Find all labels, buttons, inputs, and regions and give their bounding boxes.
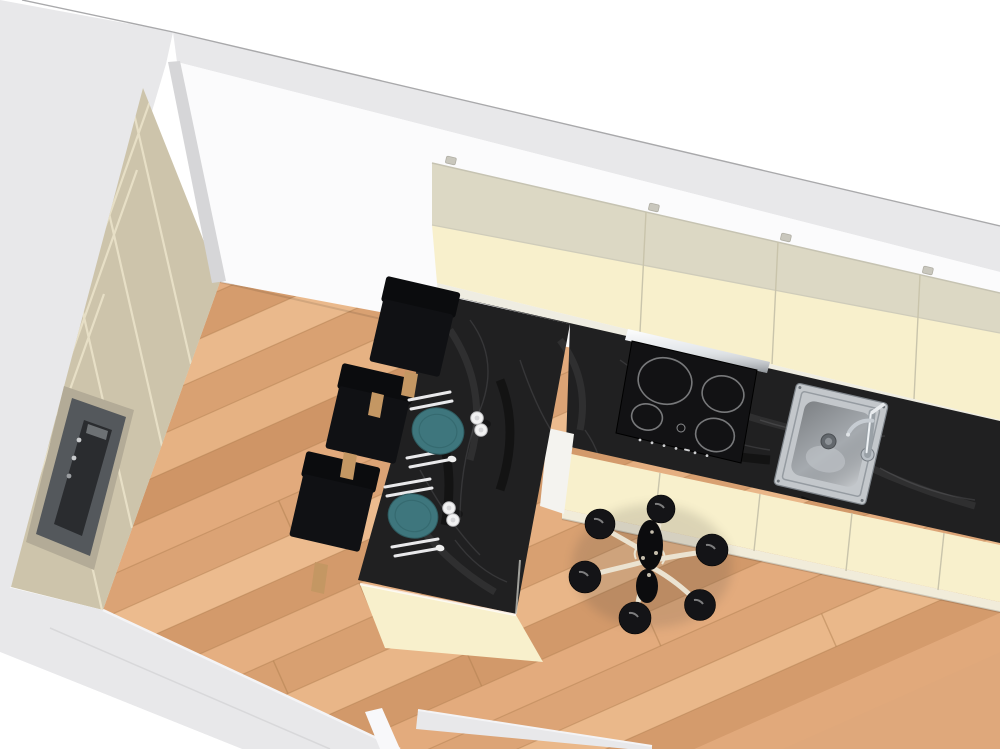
- oven-knob[interactable]: [77, 438, 82, 443]
- lamp-shade[interactable]: [647, 495, 675, 523]
- glass-stem: [475, 416, 480, 421]
- kitchen-3d-render: [0, 0, 1000, 749]
- chandelier-column: [637, 520, 663, 570]
- chandelier-hub: [636, 569, 658, 603]
- lamp-shade[interactable]: [569, 561, 601, 593]
- lamp-shade[interactable]: [619, 602, 651, 634]
- oven-knob[interactable]: [72, 456, 77, 461]
- glass-stem: [479, 428, 484, 433]
- scene-canvas: [0, 0, 1000, 749]
- lamp-shade[interactable]: [696, 534, 728, 566]
- glass-stem: [447, 506, 452, 511]
- oven-knob[interactable]: [67, 474, 72, 479]
- glass-stem: [451, 518, 456, 523]
- lamp-shade[interactable]: [585, 509, 615, 539]
- lamp-shade[interactable]: [685, 590, 716, 621]
